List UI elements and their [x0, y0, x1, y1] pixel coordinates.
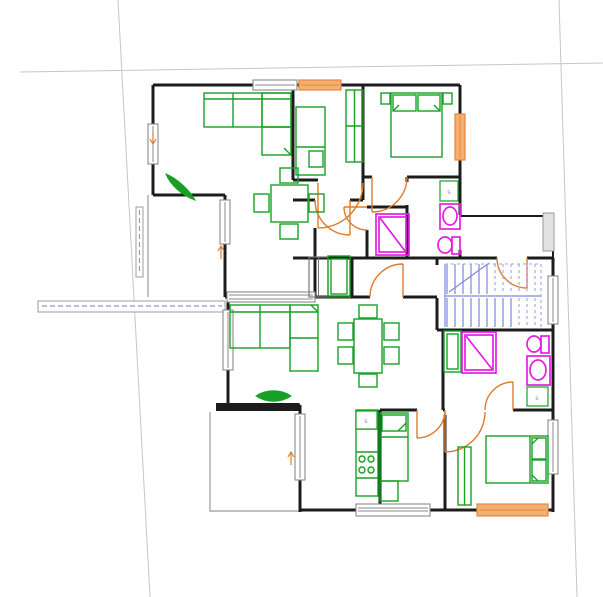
closet-gray	[309, 257, 328, 297]
door-arc-shower-upper	[344, 207, 367, 230]
terrace-lower	[210, 412, 300, 511]
balcony-railing	[136, 207, 143, 277]
toilet-upper	[438, 237, 460, 254]
door-arc-entry-lower	[370, 264, 403, 297]
bed-single-upper	[296, 107, 325, 175]
sink-upper	[440, 204, 460, 229]
door-arc-bath-lower	[485, 382, 513, 410]
arrow-up-icon-2	[288, 452, 294, 465]
window-orange-east	[455, 114, 465, 160]
boiler-box-upper: s	[440, 181, 458, 201]
shower-upper	[376, 214, 409, 255]
window-stairwell-east	[548, 276, 558, 324]
walls-vestibule	[461, 216, 553, 258]
shower-lower	[462, 332, 496, 373]
toilet-lower	[527, 336, 549, 353]
staircase	[445, 263, 541, 327]
window-kitchen-west	[295, 414, 305, 480]
door-arc-bedroom-main-lower	[445, 412, 485, 452]
walls-upper-apartment	[153, 85, 461, 297]
window-bottom-center	[356, 504, 430, 516]
floor-plan-canvas: s s	[0, 0, 603, 597]
window-orange-top	[299, 80, 341, 90]
boiler-box-lower: s	[527, 387, 548, 406]
floor-plan-page: s s	[0, 0, 603, 597]
bed-double-upper	[381, 93, 452, 157]
bed-single-lower	[380, 413, 408, 501]
wardrobe-upper	[346, 90, 363, 162]
stove	[359, 456, 374, 473]
bed-double-lower	[486, 436, 548, 483]
boiler-box-kitchen: s	[356, 411, 377, 429]
door-arc-bedroom-small-lower	[417, 410, 445, 438]
window-orange-bottom	[477, 504, 548, 516]
sofa-lower	[230, 305, 318, 371]
window-bedroom-east	[548, 420, 558, 474]
plant-lower	[256, 391, 291, 402]
window-top-left	[253, 80, 297, 90]
sink-lower	[527, 356, 550, 385]
dining-table-lower	[338, 305, 399, 387]
wardrobe-lower	[458, 447, 471, 505]
window-lower-living-west	[223, 310, 233, 370]
door-arc-entry-upper	[497, 258, 527, 288]
window-terrace	[220, 200, 230, 244]
door-arc-living	[318, 183, 363, 228]
chimney	[543, 213, 554, 251]
closet-green	[328, 256, 350, 297]
washing-machine-lower	[444, 331, 461, 372]
planter-band	[38, 301, 225, 312]
arrow-up-icon	[218, 246, 224, 259]
window-dining-south	[227, 292, 315, 302]
sofa-upper	[204, 93, 291, 155]
door-arc-bedroom-middle	[315, 200, 350, 235]
